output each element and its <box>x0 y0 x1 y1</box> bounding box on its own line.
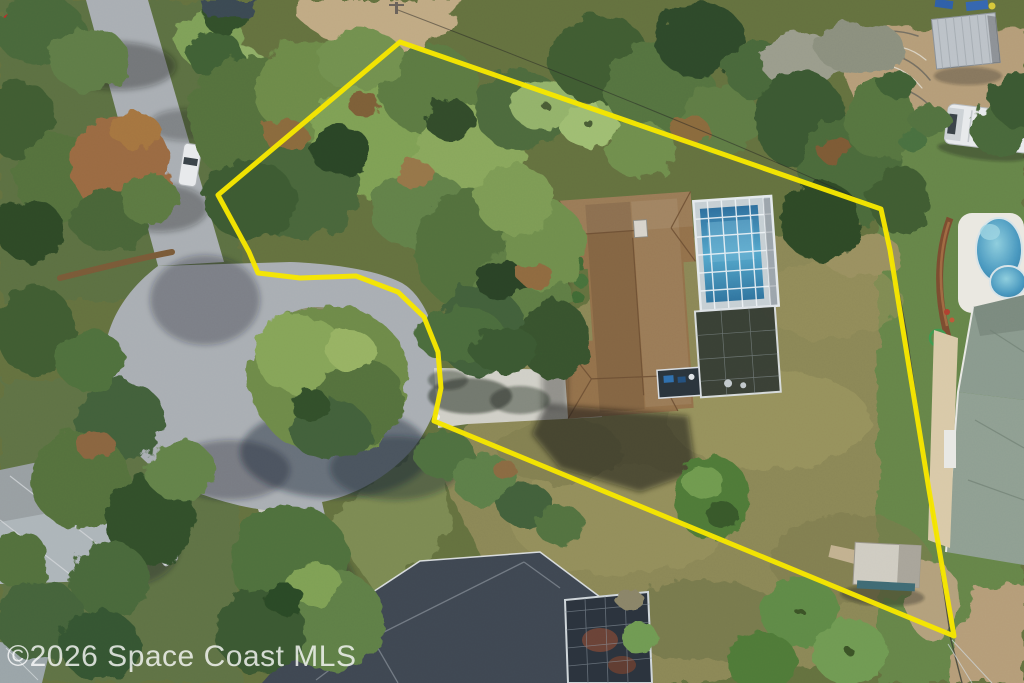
photo-grain <box>0 0 1024 683</box>
mls-watermark: ©2026 Space Coast MLS <box>7 640 356 674</box>
aerial-scene <box>0 0 1024 683</box>
aerial-photo: ©2026 Space Coast MLS <box>0 0 1024 683</box>
